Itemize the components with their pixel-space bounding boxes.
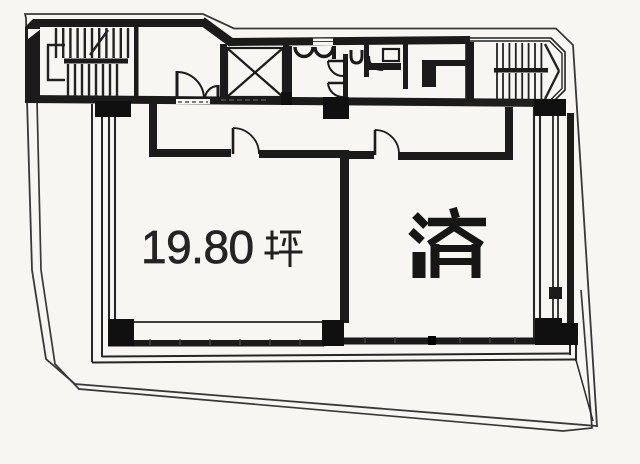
svg-text:19.80: 19.80 — [141, 221, 254, 273]
